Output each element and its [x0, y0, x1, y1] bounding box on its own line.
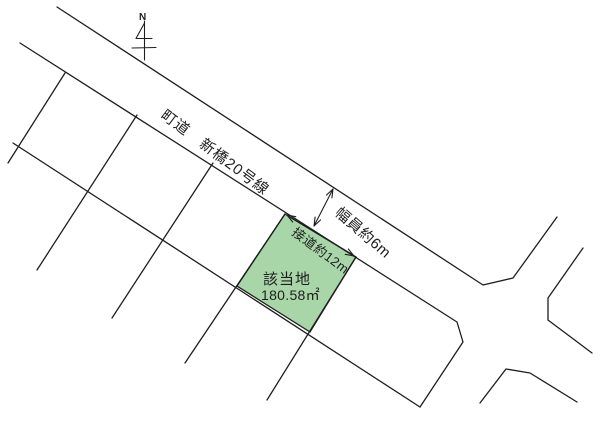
- lot-boundary-3: [112, 163, 213, 318]
- road-width-arrow: [314, 189, 333, 226]
- land-lot-map: N 町道 新橋20号線 幅員約6m 接道約12m 該当地 180.58㎡: [0, 0, 600, 422]
- road-width-arrow-shaft: [314, 189, 333, 226]
- north-arrow: N: [132, 12, 156, 60]
- road-name-label: 町道 新橋20号線: [158, 107, 273, 199]
- intersection-east-corner: [548, 248, 592, 353]
- north-arrow-crossbar: [132, 48, 156, 49]
- plot-name-label: 該当地: [263, 271, 311, 288]
- plot-area-label: 180.58㎡: [261, 287, 320, 303]
- site-plan-drawing: N 町道 新橋20号線 幅員約6m 接道約12m 該当地 180.58㎡: [0, 0, 600, 422]
- lots-back-boundary: [13, 143, 420, 407]
- lot-boundary-1: [8, 73, 65, 163]
- main-road-lower-edge: [20, 43, 463, 407]
- lot-boundary-2: [37, 115, 137, 270]
- north-label: N: [139, 12, 146, 23]
- boundary-lines: [8, 7, 592, 407]
- intersection-south-corner: [480, 369, 577, 403]
